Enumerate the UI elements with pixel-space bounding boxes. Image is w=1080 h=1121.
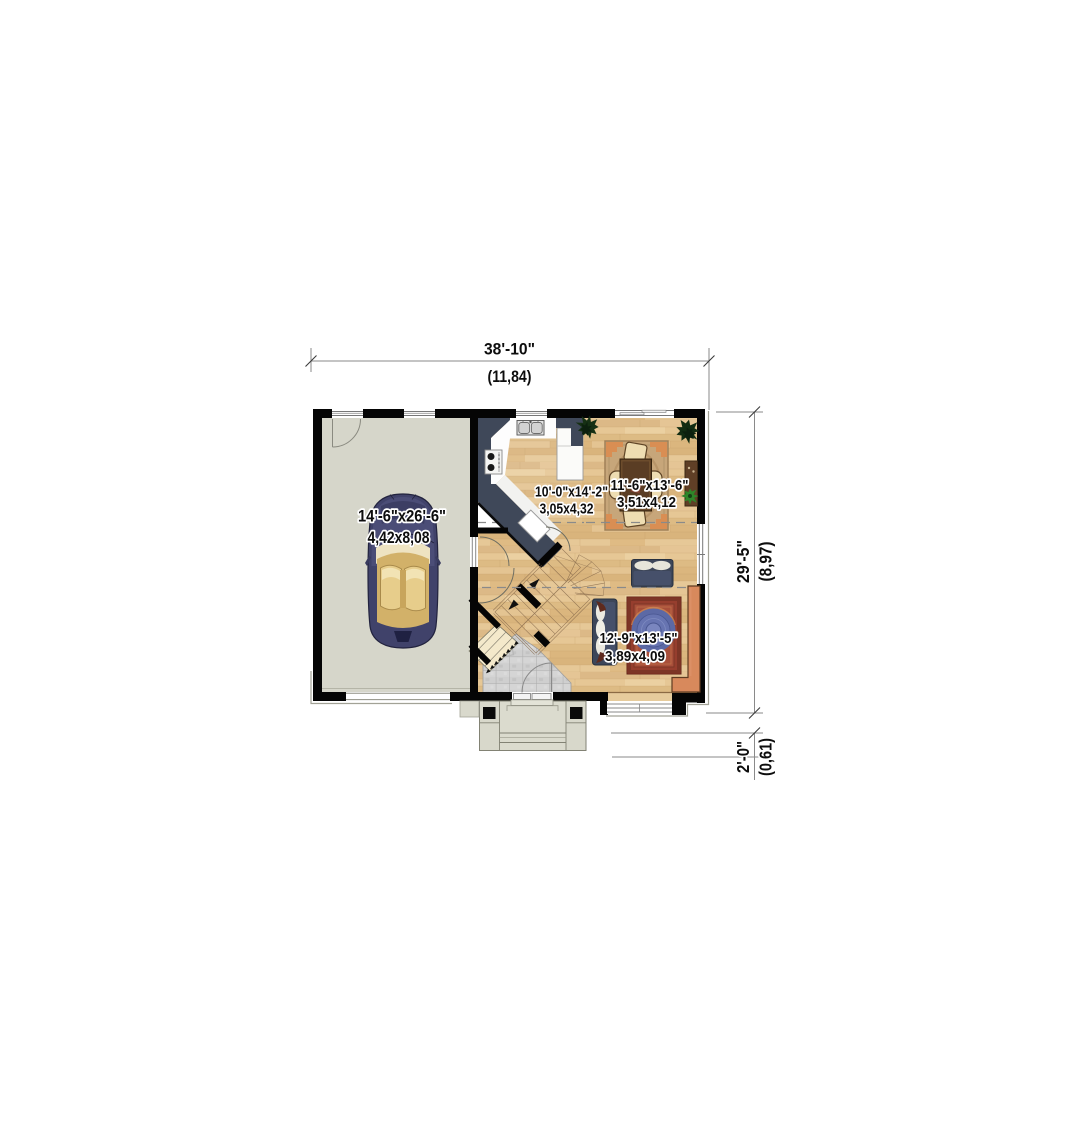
svg-text:(0,61): (0,61)	[756, 738, 776, 776]
svg-text:2'-0": 2'-0"	[733, 741, 753, 773]
svg-text:(11,84): (11,84)	[488, 367, 532, 386]
svg-text:4,42x8,08: 4,42x8,08	[368, 528, 430, 547]
svg-text:38'-10": 38'-10"	[484, 340, 535, 359]
svg-text:3,51x4,12: 3,51x4,12	[617, 494, 676, 511]
svg-text:3,05x4,32: 3,05x4,32	[540, 501, 594, 518]
svg-text:(8,97): (8,97)	[756, 542, 776, 582]
svg-text:29'-5": 29'-5"	[733, 540, 753, 583]
svg-text:10'-0"x14'-2": 10'-0"x14'-2"	[535, 484, 608, 501]
svg-text:3,89x4,09: 3,89x4,09	[605, 648, 665, 665]
svg-text:12'-9"x13'-5": 12'-9"x13'-5"	[600, 630, 678, 647]
svg-text:14'-6"x26'-6": 14'-6"x26'-6"	[358, 507, 446, 526]
svg-text:11'-6"x13'-6": 11'-6"x13'-6"	[611, 477, 689, 494]
